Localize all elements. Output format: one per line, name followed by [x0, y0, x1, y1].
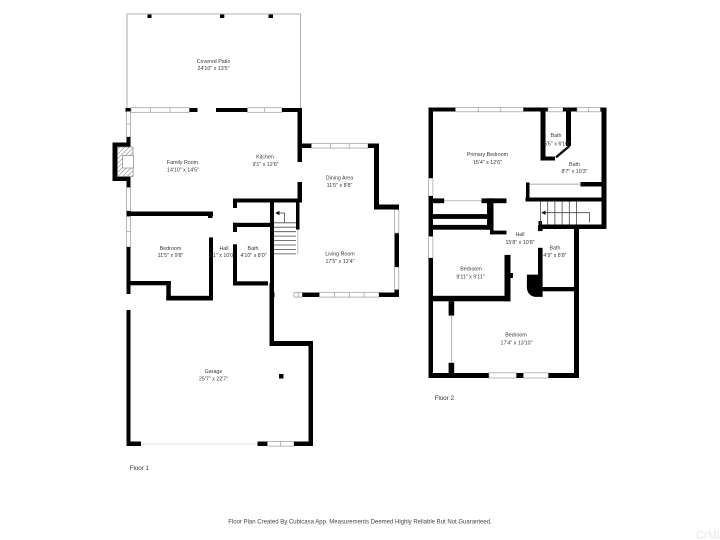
svg-text:8'7" x 10'3": 8'7" x 10'3"	[561, 169, 587, 175]
svg-text:Living Room: Living Room	[325, 252, 355, 258]
svg-text:Bath: Bath	[248, 246, 259, 252]
svg-text:Bedroom: Bedroom	[505, 332, 527, 338]
svg-text:3'1" x 10'0": 3'1" x 10'0"	[209, 253, 235, 259]
svg-text:Primary Bedroom: Primary Bedroom	[467, 152, 509, 158]
svg-text:25'7" x 22'7": 25'7" x 22'7"	[199, 376, 228, 382]
svg-text:Garage: Garage	[205, 369, 223, 375]
svg-text:Covered Patio: Covered Patio	[197, 59, 231, 65]
svg-text:Floor 2: Floor 2	[435, 395, 455, 402]
svg-text:Hall: Hall	[219, 246, 228, 252]
svg-text:Bath: Bath	[551, 133, 562, 139]
svg-text:15'8" x 10'8": 15'8" x 10'8"	[505, 240, 534, 246]
svg-text:Bedroom: Bedroom	[160, 246, 182, 252]
svg-text:15'4" x 12'6": 15'4" x 12'6"	[473, 160, 502, 166]
svg-text:Bath: Bath	[569, 162, 580, 168]
svg-text:9'1" x 12'6": 9'1" x 12'6"	[252, 162, 278, 168]
svg-text:4'9" x 8'8": 4'9" x 8'8"	[543, 253, 566, 259]
svg-text:Floor Plan Created By Cubicasa: Floor Plan Created By Cubicasa App. Meas…	[228, 520, 492, 526]
svg-text:14'10" x 14'5": 14'10" x 14'5"	[167, 168, 199, 174]
svg-text:11'5" x 9'8": 11'5" x 9'8"	[158, 253, 184, 259]
svg-text:Floor 1: Floor 1	[130, 465, 150, 472]
svg-text:CrMLS: CrMLS	[696, 530, 720, 540]
svg-text:5'5" x 6'10": 5'5" x 6'10"	[544, 141, 570, 147]
svg-text:Hall: Hall	[515, 232, 524, 238]
svg-text:Kitchen: Kitchen	[256, 155, 274, 161]
svg-text:Bedroom: Bedroom	[460, 266, 482, 272]
svg-text:17'4" x 13'10": 17'4" x 13'10"	[501, 341, 533, 347]
svg-text:4'10" x 8'0": 4'10" x 8'0"	[240, 253, 266, 259]
svg-text:24'10" x 13'5": 24'10" x 13'5"	[198, 66, 230, 72]
svg-text:Bath: Bath	[550, 245, 561, 251]
svg-text:11'5" x 8'8": 11'5" x 8'8"	[327, 183, 353, 189]
svg-text:17'5" x 12'4": 17'5" x 12'4"	[325, 259, 354, 265]
svg-text:Family Room: Family Room	[167, 160, 199, 166]
svg-text:Dining Area: Dining Area	[326, 176, 353, 182]
svg-text:9'11" x 9'11": 9'11" x 9'11"	[456, 275, 484, 281]
